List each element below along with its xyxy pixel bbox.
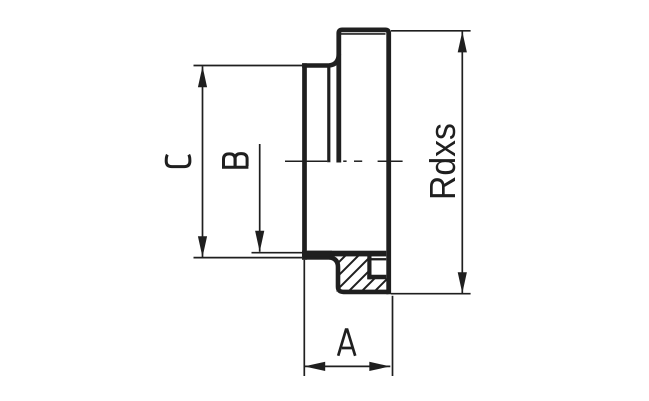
svg-text:Rdxs: Rdxs xyxy=(423,123,463,200)
